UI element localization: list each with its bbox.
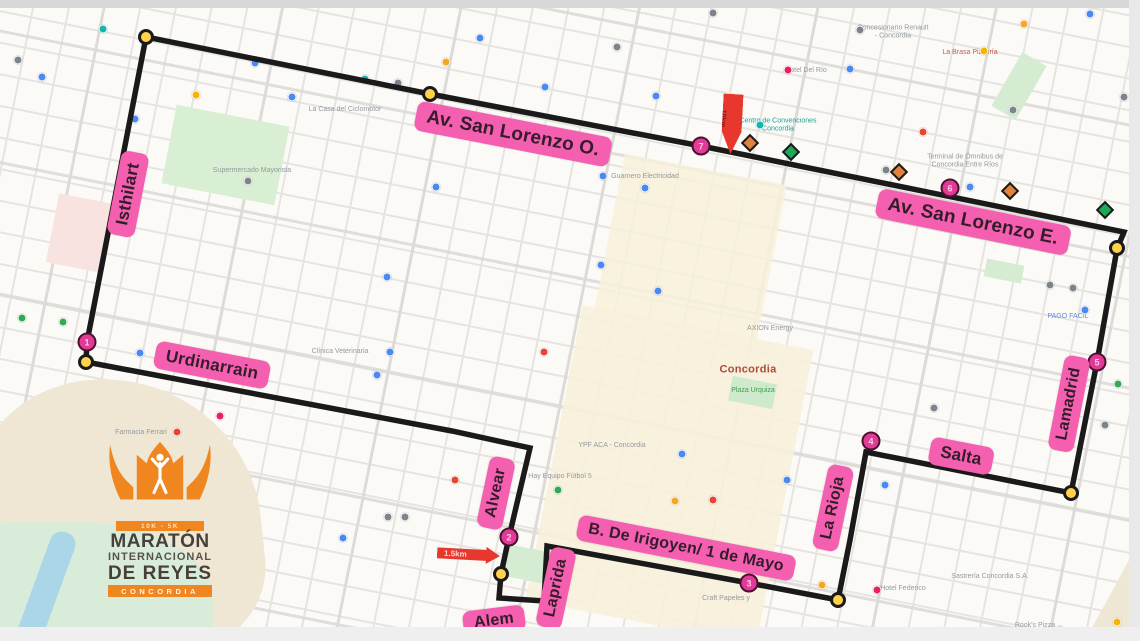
crown-runner-icon	[104, 441, 216, 515]
logo-title-line1: MARATÓN	[85, 532, 235, 551]
event-logo: 10K - 5K MARATÓN INTERNACIONAL DE REYES …	[85, 441, 235, 597]
logo-city-banner: CONCORDIA	[108, 585, 212, 598]
street-label-laprida: Laprida	[535, 546, 577, 631]
logo-title-line2: INTERNACIONAL	[85, 551, 235, 564]
street-label-urdinarrain: Urdinarrain	[152, 340, 271, 390]
top-border-band	[0, 0, 1140, 8]
bottom-border-band	[0, 627, 1140, 641]
street-label-salta: Salta	[927, 436, 995, 476]
street-label-av-san-lorenzo-e: Av. San Lorenzo E.	[874, 188, 1072, 256]
street-label-isthilart: Isthilart	[106, 150, 150, 239]
logo-distance-badge: 10K - 5K	[116, 521, 204, 531]
right-border-band	[1129, 0, 1140, 641]
street-label-lamadrid: Lamadrid	[1047, 355, 1091, 454]
logo-title-line3: DE REYES	[85, 564, 235, 583]
street-label-b-de-irigoyen-1-de-mayo: B. De Irigoyen/ 1 de Mayo	[575, 514, 797, 582]
street-label-la-rioja: La Rioja	[811, 463, 854, 552]
street-label-av-san-lorenzo-o: Av. San Lorenzo O.	[413, 100, 613, 167]
street-label-alvear: Alvear	[476, 455, 516, 531]
marathon-route-map: Centro de Convenciones ConcordiaTerminal…	[0, 0, 1140, 641]
